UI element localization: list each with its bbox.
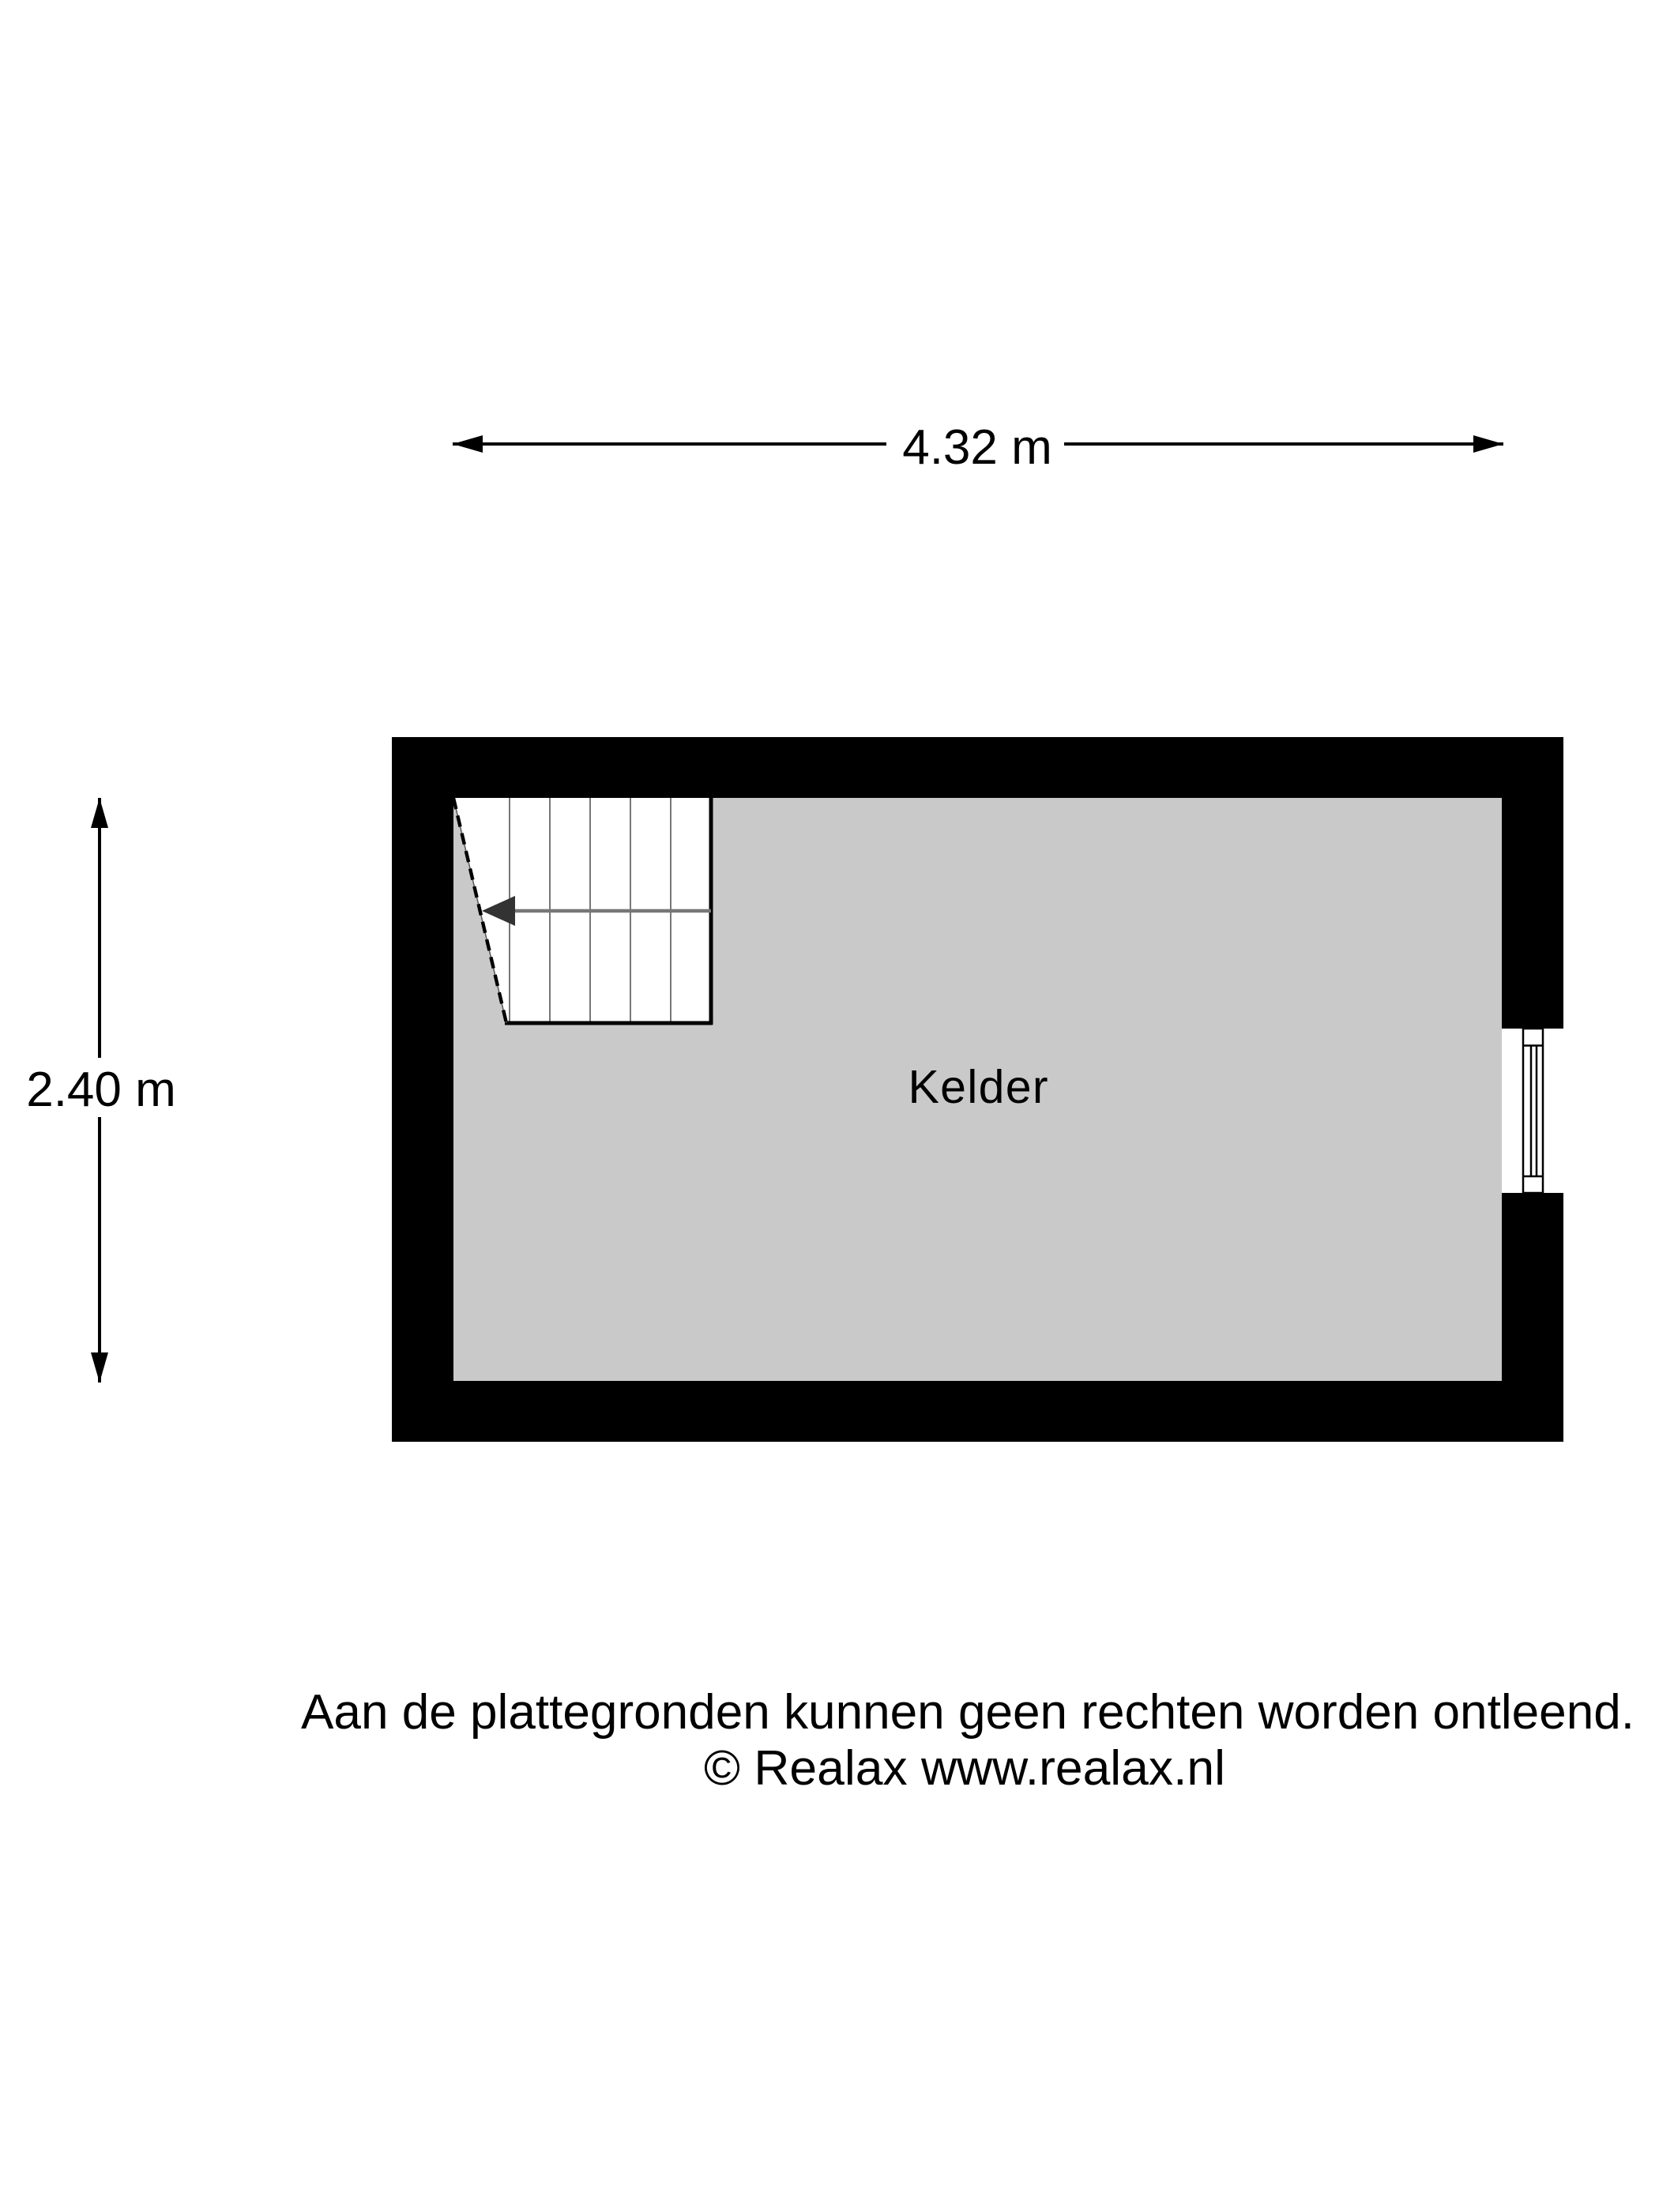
svg-text:Aan de plattegronden kunnen ge: Aan de plattegronden kunnen geen rechten…	[301, 1685, 1635, 1740]
svg-text:4.32 m: 4.32 m	[902, 420, 1052, 475]
svg-text:2.40 m: 2.40 m	[26, 1063, 176, 1117]
svg-text:© Realax www.realax.nl: © Realax www.realax.nl	[704, 1741, 1225, 1796]
svg-text:Kelder: Kelder	[908, 1061, 1048, 1113]
